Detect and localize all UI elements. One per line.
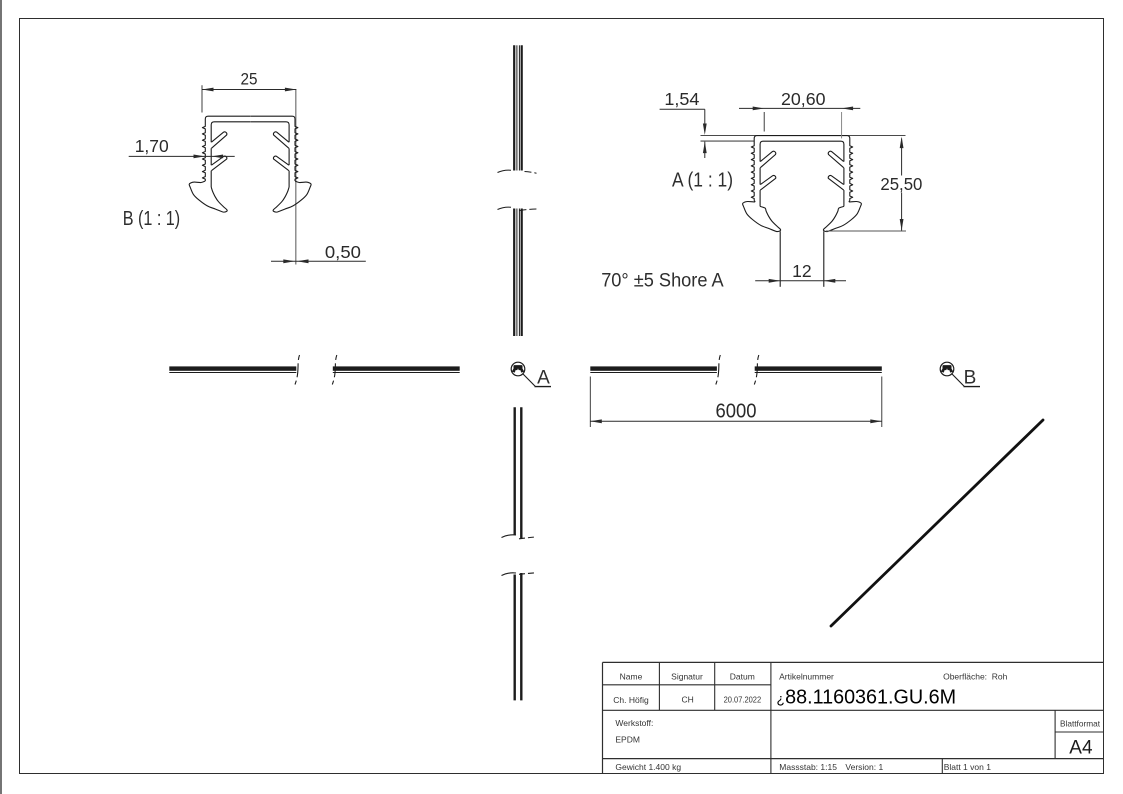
- svg-text:Artikelnummer: Artikelnummer: [779, 671, 834, 681]
- svg-text:A (1 : 1): A (1 : 1): [672, 169, 733, 191]
- svg-text:A4: A4: [1069, 738, 1093, 759]
- svg-text:¿: ¿: [777, 692, 785, 707]
- svg-text:20.07.2022: 20.07.2022: [724, 696, 762, 705]
- svg-text:Oberfläche: Roh: Oberfläche: Roh: [943, 671, 1008, 681]
- svg-text:1,70: 1,70: [135, 136, 169, 156]
- svg-text:25: 25: [241, 71, 258, 89]
- svg-text:Version: 1: Version: 1: [845, 762, 883, 772]
- svg-text:A: A: [537, 367, 550, 388]
- svg-text:6000: 6000: [716, 401, 757, 423]
- svg-text:Werkstoff:: Werkstoff:: [615, 718, 653, 728]
- svg-text:Ch. Höfig: Ch. Höfig: [613, 695, 649, 705]
- svg-text:Blatt 1 von 1: Blatt 1 von 1: [944, 762, 992, 772]
- svg-text:25,50: 25,50: [880, 174, 922, 194]
- svg-text:12: 12: [792, 261, 812, 281]
- svg-text:B (1 : 1): B (1 : 1): [123, 208, 181, 230]
- svg-text:Signatur: Signatur: [671, 671, 703, 681]
- svg-text:Datum: Datum: [730, 671, 755, 681]
- svg-text:B: B: [964, 367, 977, 388]
- svg-text:Massstab: 1:15: Massstab: 1:15: [779, 762, 837, 772]
- svg-text:88.1160361.GU.6M: 88.1160361.GU.6M: [785, 685, 956, 708]
- svg-text:CH: CH: [682, 695, 694, 705]
- svg-text:0,50: 0,50: [325, 242, 361, 262]
- svg-text:Blattformat: Blattformat: [1060, 719, 1101, 729]
- svg-text:Name: Name: [620, 671, 643, 681]
- svg-text:70° ±5 Shore A: 70° ±5 Shore A: [601, 269, 724, 291]
- svg-text:Gewicht 1.400 kg: Gewicht 1.400 kg: [615, 762, 681, 772]
- svg-text:EPDM: EPDM: [615, 734, 640, 744]
- svg-text:20,60: 20,60: [781, 89, 826, 109]
- svg-text:1,54: 1,54: [664, 89, 699, 109]
